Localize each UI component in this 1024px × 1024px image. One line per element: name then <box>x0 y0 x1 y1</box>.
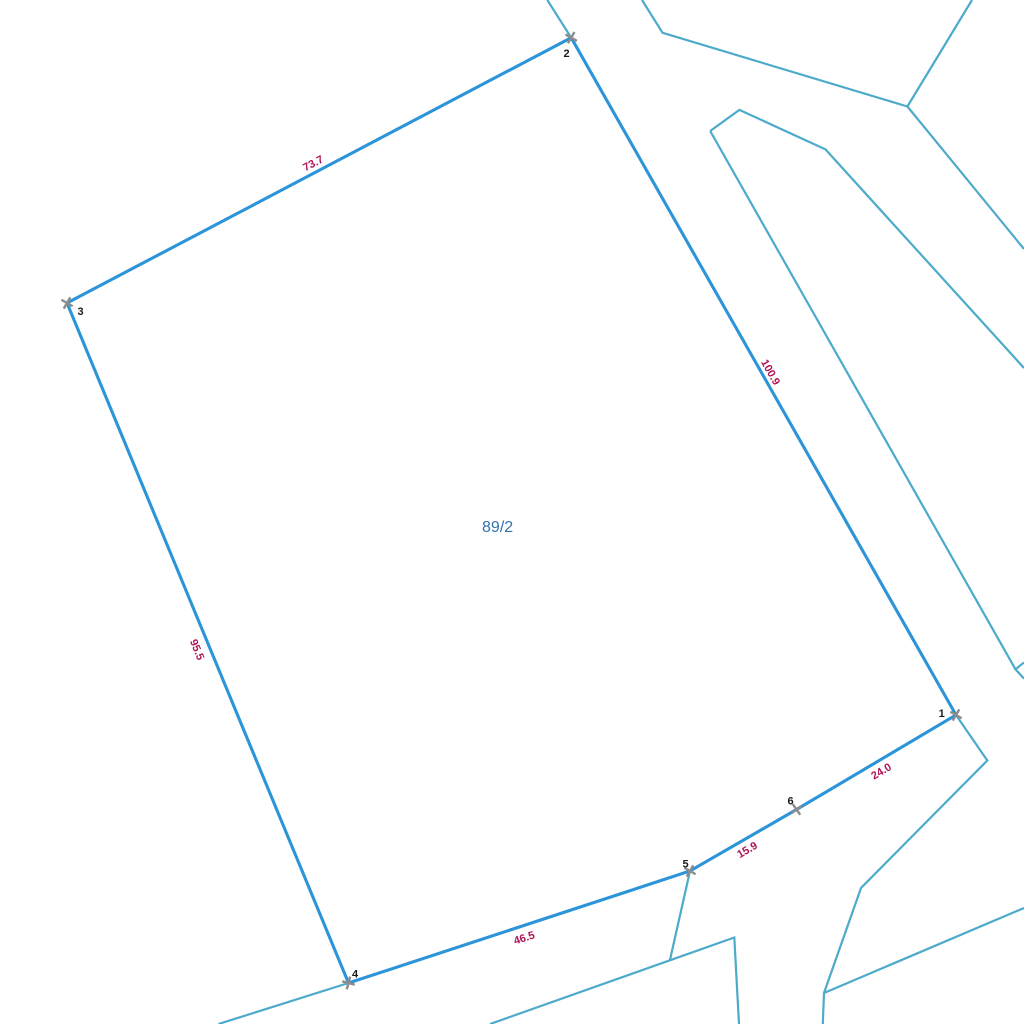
svg-text:5: 5 <box>682 859 688 871</box>
svg-text:73.7: 73.7 <box>301 154 326 175</box>
svg-text:1: 1 <box>939 708 945 720</box>
svg-text:4: 4 <box>352 969 359 981</box>
svg-text:3: 3 <box>77 306 83 318</box>
svg-text:89/2: 89/2 <box>482 519 513 536</box>
svg-text:95.5: 95.5 <box>187 638 206 662</box>
svg-text:6: 6 <box>787 796 793 808</box>
svg-text:2: 2 <box>563 48 569 60</box>
svg-text:46.5: 46.5 <box>512 929 536 947</box>
